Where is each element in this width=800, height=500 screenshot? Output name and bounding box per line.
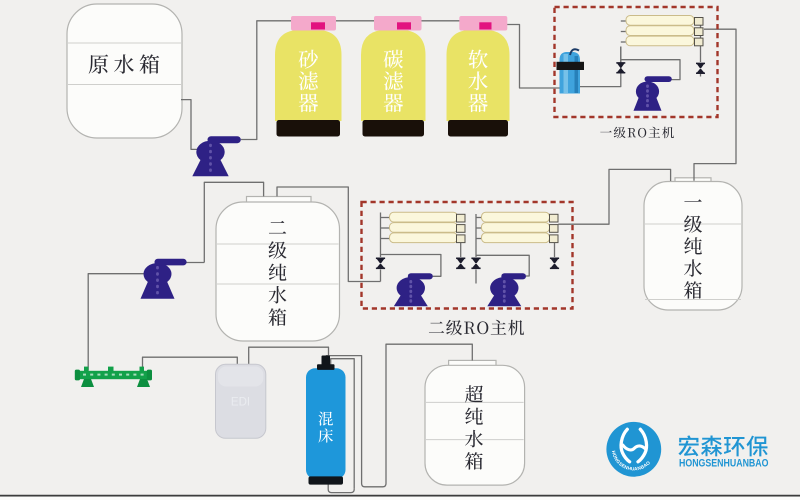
- svg-text:EDI: EDI: [231, 397, 250, 409]
- svg-text:HONGSENHUANBAO: HONGSENHUANBAO: [679, 458, 769, 470]
